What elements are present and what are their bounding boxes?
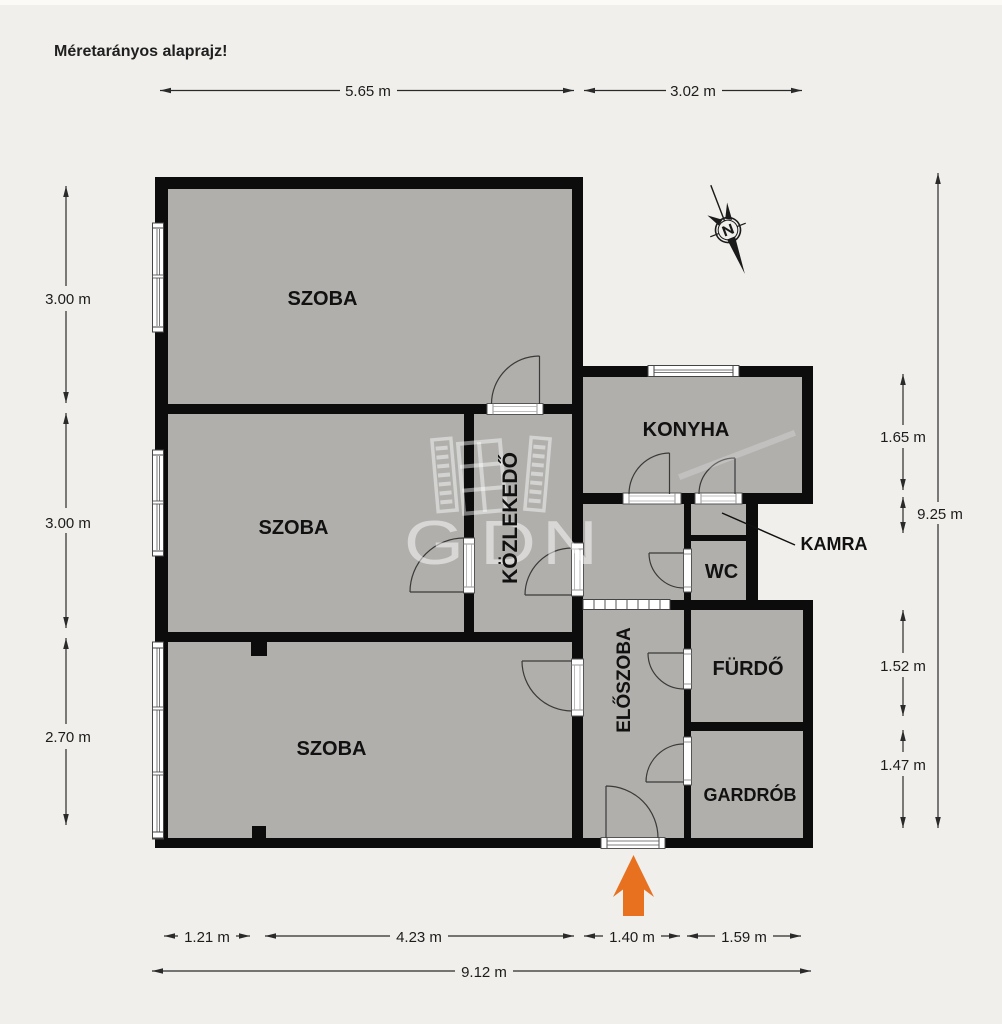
svg-text:ELŐSZOBA: ELŐSZOBA bbox=[613, 627, 635, 733]
svg-text:SZOBA: SZOBA bbox=[259, 517, 329, 539]
svg-text:KONYHA: KONYHA bbox=[643, 419, 730, 441]
svg-text:4.23 m: 4.23 m bbox=[396, 929, 442, 946]
svg-text:3.00 m: 3.00 m bbox=[45, 291, 91, 308]
svg-text:5.65 m: 5.65 m bbox=[345, 83, 391, 100]
svg-text:WC: WC bbox=[705, 561, 738, 583]
svg-text:9.12 m: 9.12 m bbox=[461, 964, 507, 981]
svg-text:KÖZLEKEDŐ: KÖZLEKEDŐ bbox=[499, 452, 522, 584]
svg-text:FÜRDŐ: FÜRDŐ bbox=[712, 657, 783, 680]
svg-text:1.65 m: 1.65 m bbox=[880, 429, 926, 446]
svg-text:SZOBA: SZOBA bbox=[288, 288, 358, 310]
svg-text:Méretarányos alaprajz!: Méretarányos alaprajz! bbox=[54, 43, 227, 60]
svg-text:SZOBA: SZOBA bbox=[297, 738, 367, 760]
svg-text:9.25 m: 9.25 m bbox=[917, 506, 963, 523]
svg-text:1.59 m: 1.59 m bbox=[721, 929, 767, 946]
svg-text:1.21 m: 1.21 m bbox=[184, 929, 230, 946]
svg-text:1.40 m: 1.40 m bbox=[609, 929, 655, 946]
svg-text:1.47 m: 1.47 m bbox=[880, 757, 926, 774]
svg-text:KAMRA: KAMRA bbox=[801, 534, 868, 554]
svg-text:2.70 m: 2.70 m bbox=[45, 729, 91, 746]
svg-text:3.00 m: 3.00 m bbox=[45, 515, 91, 532]
svg-text:GARDRÓB: GARDRÓB bbox=[704, 784, 797, 805]
svg-text:G: G bbox=[404, 507, 464, 577]
svg-text:N: N bbox=[542, 507, 598, 577]
svg-text:3.02 m: 3.02 m bbox=[670, 83, 716, 100]
svg-text:1.52 m: 1.52 m bbox=[880, 658, 926, 675]
